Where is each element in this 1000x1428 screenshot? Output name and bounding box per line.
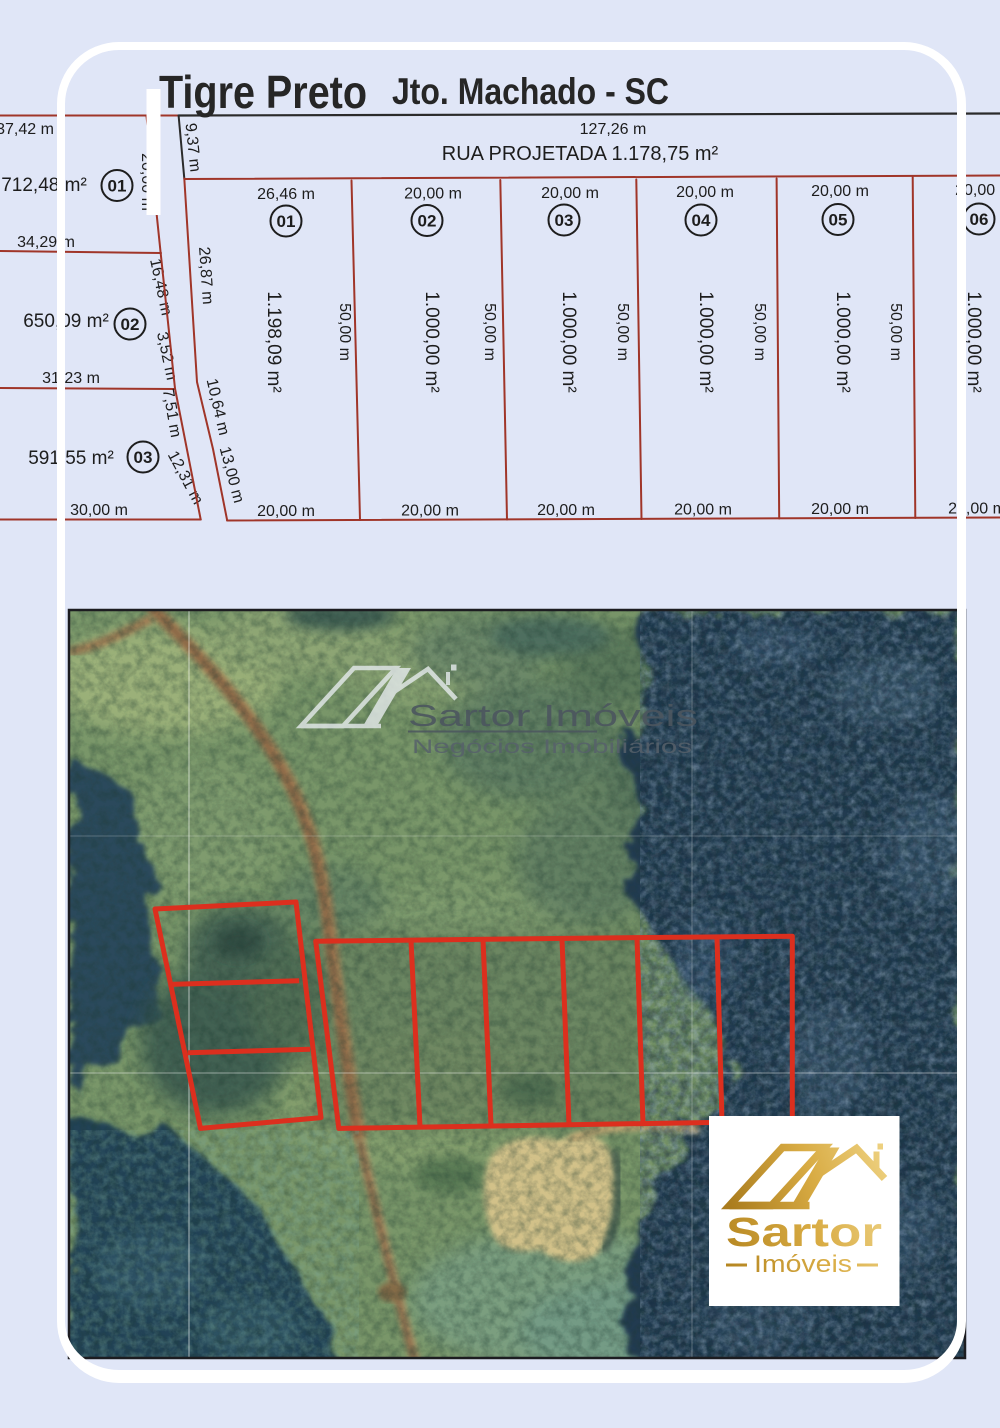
svg-text:1.000,00 m²: 1.000,00 m² [963, 291, 984, 392]
svg-text:06: 06 [970, 210, 989, 229]
svg-text:37,42 m: 37,42 m [0, 121, 54, 138]
